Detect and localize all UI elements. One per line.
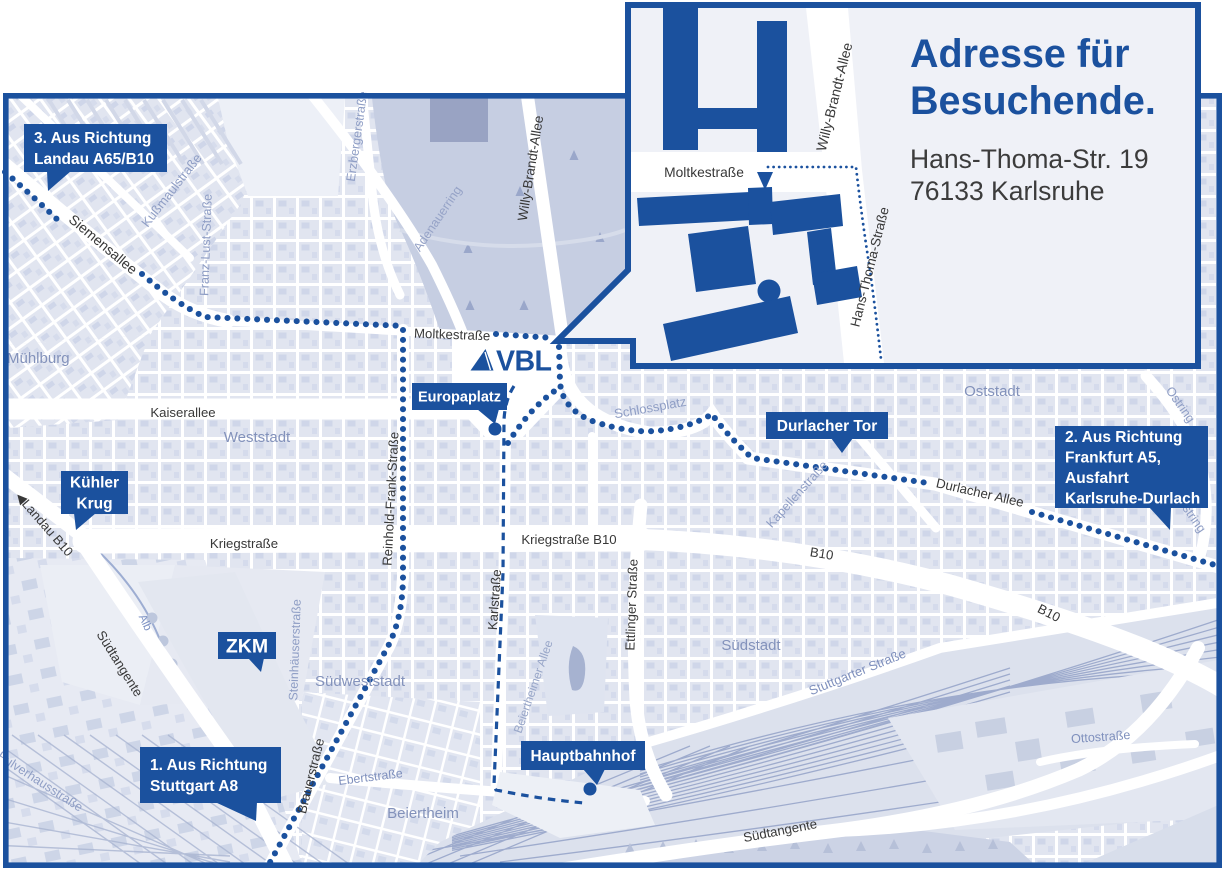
svg-text:Adresse für: Adresse für [910, 32, 1130, 76]
svg-text:Hauptbahnhof: Hauptbahnhof [530, 748, 636, 765]
svg-text:Beiertheim: Beiertheim [387, 805, 459, 822]
svg-text:Krug: Krug [76, 496, 112, 513]
svg-text:3. Aus Richtung: 3. Aus Richtung [34, 130, 151, 147]
svg-text:Frankfurt A5,: Frankfurt A5, [1065, 449, 1161, 466]
svg-text:VBL: VBL [496, 346, 552, 378]
svg-text:Karlsruhe-Durlach: Karlsruhe-Durlach [1065, 490, 1200, 507]
svg-text:Hans-Thoma-Str. 19: Hans-Thoma-Str. 19 [910, 144, 1149, 174]
svg-text:Besuchende.: Besuchende. [910, 79, 1156, 123]
svg-text:Ettlinger Straße: Ettlinger Straße [622, 559, 640, 651]
svg-text:1. Aus Richtung: 1. Aus Richtung [150, 757, 267, 774]
svg-text:76133 Karlsruhe: 76133 Karlsruhe [910, 176, 1104, 206]
svg-text:Moltkestraße: Moltkestraße [664, 165, 744, 180]
svg-text:Durlacher Tor: Durlacher Tor [777, 418, 878, 435]
svg-text:Landau A65/B10: Landau A65/B10 [34, 151, 154, 168]
svg-text:2. Aus Richtung: 2. Aus Richtung [1065, 429, 1182, 446]
svg-text:Oststadt: Oststadt [964, 383, 1021, 400]
svg-text:Südstadt: Südstadt [721, 637, 781, 654]
svg-text:Stuttgart A8: Stuttgart A8 [150, 778, 238, 795]
svg-text:ZKM: ZKM [226, 635, 268, 657]
svg-text:Weststadt: Weststadt [224, 429, 291, 446]
svg-text:Kühler: Kühler [70, 475, 119, 492]
svg-text:Kriegstraße B10: Kriegstraße B10 [521, 532, 616, 547]
svg-text:Kriegstraße: Kriegstraße [210, 536, 278, 551]
svg-text:Europaplatz: Europaplatz [418, 390, 501, 406]
svg-text:Südweststadt: Südweststadt [315, 673, 406, 690]
svg-text:Ausfahrt: Ausfahrt [1065, 470, 1129, 487]
svg-text:Kaiserallee: Kaiserallee [150, 405, 215, 420]
svg-text:Mühlburg: Mühlburg [7, 350, 70, 367]
svg-text:Moltkestraße: Moltkestraße [414, 326, 491, 344]
